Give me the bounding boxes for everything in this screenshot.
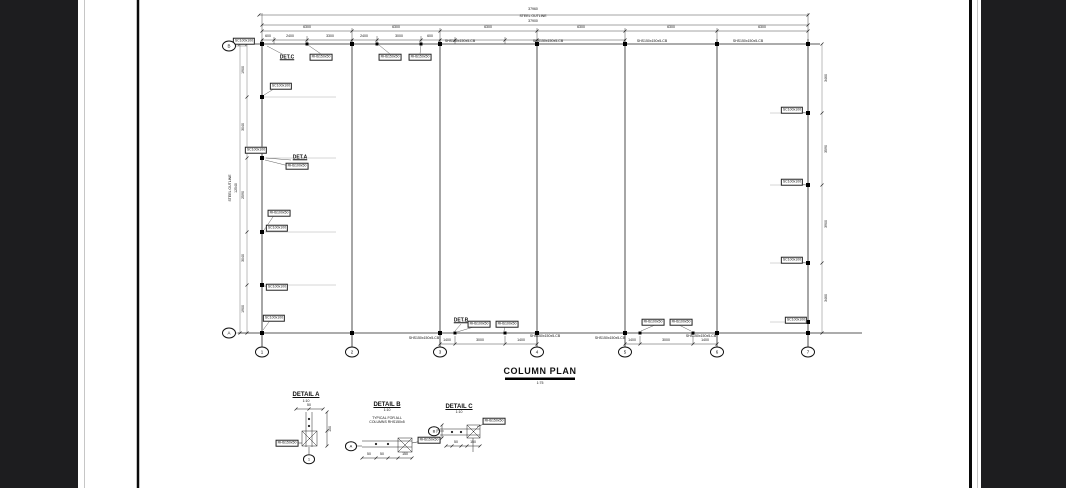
detail-a-label-box: RHS150x50: [276, 440, 299, 447]
member-label-box: SC100x100: [270, 83, 292, 90]
column-markers: [260, 42, 810, 335]
member-label-box: RHS100x50: [670, 319, 693, 326]
page-edge-lines: [85, 0, 978, 488]
member-label-box: RHS150x50: [409, 54, 432, 61]
member-label-box: RHS150x50: [379, 54, 402, 61]
grid-bubble-7: 7: [801, 347, 815, 358]
right-chain-dim: 3900: [825, 220, 829, 228]
member-label-box: SC100x100: [781, 257, 803, 264]
member-size-text: SHS150x150x5-CB: [533, 40, 563, 44]
detail-c-label-box: RHS150x50: [483, 418, 506, 425]
sub-dim: 3000: [395, 35, 403, 39]
detail-b-dim: 50: [367, 453, 371, 457]
grid-bubble-5: 5: [618, 347, 632, 358]
detail-b-note: COLUMNS RHS150x5: [369, 421, 404, 425]
member-label-box: SC100x100: [266, 284, 288, 291]
sub-dim: 600: [427, 35, 433, 39]
member-label-box: RHS100x50: [268, 210, 291, 217]
member-label-box: RHS100x50: [642, 319, 665, 326]
detail-c-dim: 50: [454, 441, 458, 445]
member-size-text: SHS150x150x5-CB: [530, 335, 560, 339]
detail-a-dim: 50: [307, 404, 311, 408]
callout-det-c: DET.C: [280, 55, 294, 61]
bay-dim: 6300: [484, 26, 492, 30]
member-label-box: SC100x100: [781, 107, 803, 114]
grid-bubble-3: 3: [433, 347, 447, 358]
member-label-box: RHS150x50: [310, 54, 333, 61]
bay-dim: 6300: [667, 26, 675, 30]
sheet-frame-lines: [138, 0, 971, 488]
bay-dim: 6300: [577, 26, 585, 30]
sub-dim: 2400: [360, 35, 368, 39]
member-label-box: SC100x100: [266, 225, 288, 232]
member-label-box: RHS100x50: [286, 163, 309, 170]
sub-dim: 1400: [701, 339, 709, 343]
grid-lines: [238, 39, 862, 347]
grid-bubble-1: 1: [255, 347, 269, 358]
sub-dim: 1400: [517, 339, 525, 343]
plan-title: COLUMN PLAN: [503, 366, 576, 376]
grid-bubble-4: 4: [530, 347, 544, 358]
dimension-ticks: [239, 14, 824, 346]
detail-c-dim: 150: [470, 441, 476, 445]
detail-b-scale: 1:10: [384, 409, 391, 413]
member-label-box: SC100x100: [233, 38, 255, 45]
detail-b-dim: 150: [402, 453, 408, 457]
sub-dim: 3300: [326, 35, 334, 39]
left-chain-dim: 3040: [242, 123, 246, 131]
grid-bubble-row-a: A: [222, 328, 236, 339]
detail-b-grid-bubble: A: [345, 441, 357, 451]
callout-det-a: DET.A: [293, 155, 307, 161]
leader-lines: [263, 45, 806, 332]
plan-title-underline: [505, 378, 575, 381]
detail-a-dim: 150: [329, 426, 333, 432]
member-size-text: SHS150x150x5-CB: [637, 40, 667, 44]
member-label-box: RHS100x50: [496, 321, 519, 328]
left-chain-dim: 1900: [242, 305, 246, 313]
bay-dim: 6300: [303, 26, 311, 30]
member-label-box: RHS100x50: [468, 321, 491, 328]
rail-lines: [262, 97, 808, 322]
right-chain-dim: 3590: [825, 145, 829, 153]
bay-dim: 6300: [758, 26, 766, 30]
plan-linework: [0, 0, 1066, 488]
dim-overall-top2: 37900: [528, 20, 538, 24]
dim-overall-top: 37960: [528, 8, 538, 12]
member-label-box: SC100x100: [785, 317, 807, 324]
left-overall-dim: 12540: [235, 183, 239, 193]
grid-bubble-2: 2: [345, 347, 359, 358]
sub-dim: 600: [265, 35, 271, 39]
detail-b-label-box: RHS150x50: [418, 437, 441, 444]
left-chain-dim: 1900: [242, 66, 246, 74]
plan-scale: 1:75: [537, 382, 544, 386]
member-size-text: SHS150x150x5-CB: [733, 40, 763, 44]
sub-dim: 3000: [476, 339, 484, 343]
sub-dim: 2400: [286, 35, 294, 39]
member-size-text: SHS150x150x5-CB: [409, 337, 439, 341]
sub-dim: 1400: [628, 339, 636, 343]
member-size-text: SHS150x150x5-CB: [445, 40, 475, 44]
grid-bubble-6: 6: [710, 347, 724, 358]
member-label-box: SC100x100: [781, 179, 803, 186]
detail-c-scale: 1:10: [456, 411, 463, 415]
detail-a-title: DETAIL A: [293, 392, 320, 398]
dimension-lines: [259, 13, 808, 344]
detail-a-grid-bubble: 1: [303, 454, 315, 464]
sub-dim: 3000: [662, 339, 670, 343]
sub-dim: 1400: [443, 339, 451, 343]
bay-dim: 6300: [392, 26, 400, 30]
member-size-text: SHS150x150x5-CB: [595, 337, 625, 341]
detail-c-dim: 75: [437, 429, 441, 433]
callout-det-b: DET.B: [454, 318, 468, 324]
left-chain-dim: 2590: [242, 191, 246, 199]
aux-dim-lines: [236, 44, 822, 333]
left-chain-dim: 3040: [242, 254, 246, 262]
member-label-box: SC100x100: [245, 147, 267, 154]
left-outline-label: STEEL OUTLINE: [229, 174, 233, 201]
right-chain-dim: 3460: [825, 294, 829, 302]
right-chain-dim: 3460: [825, 74, 829, 82]
member-label-box: SC100x100: [263, 315, 285, 322]
viewer-canvas: 37960 STEEL OUTLINE 37900 6300 6300 6300…: [0, 0, 1066, 488]
detail-b-dim: 50: [380, 453, 384, 457]
grid-bubble-row-b: B: [222, 41, 236, 52]
